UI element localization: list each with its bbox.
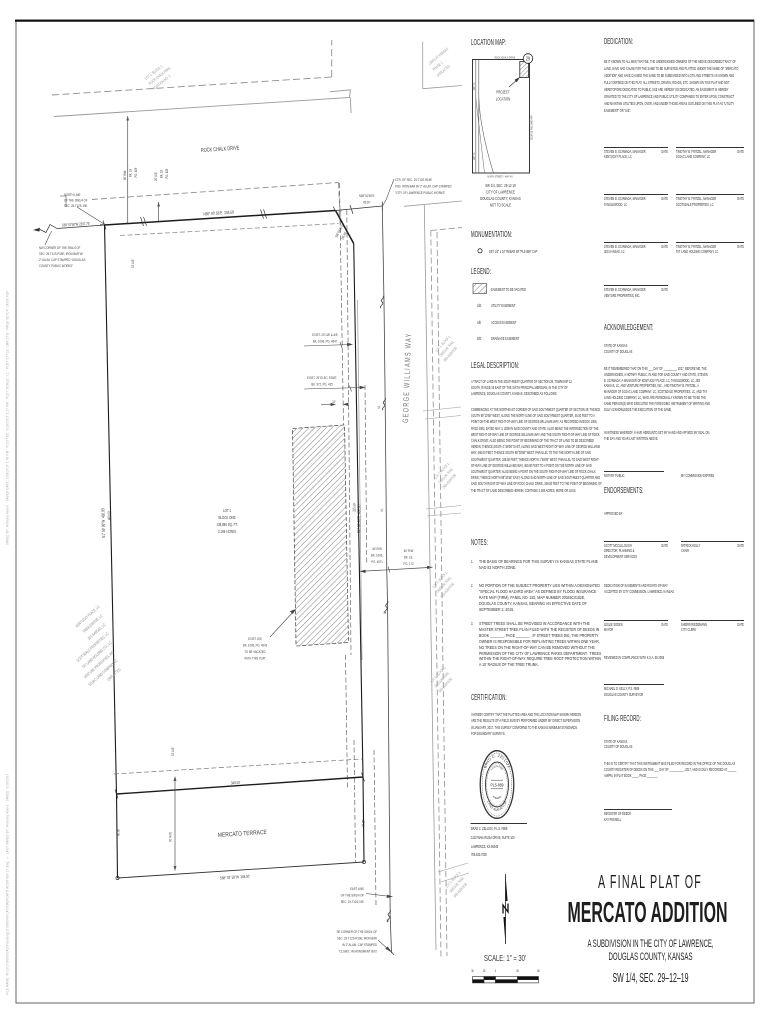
svg-text:EXIST. 20′ U/E & A/E: EXIST. 20′ U/E & A/E [312, 332, 338, 337]
svg-text:S/L: S/L [386, 918, 390, 922]
svg-text:OF THE SW1/4 OF: OF THE SW1/4 OF [341, 893, 365, 898]
svg-text:15′ U/E: 15′ U/E [171, 747, 175, 756]
svg-text:A SUBDIVISION IN THE CITY OF L: A SUBDIVISION IN THE CITY OF LAWRENCE, [588, 938, 714, 950]
svg-text:ROCK CHALK DRIVE: ROCK CHALK DRIVE [201, 146, 240, 154]
svg-text:BK. 972, PG. 435: BK. 972, PG. 435 [311, 382, 332, 387]
svg-text:GEORGE WILLIAMS WAY: GEORGE WILLIAMS WAY [530, 115, 534, 140]
svg-text:80′ R/W: 80′ R/W [123, 170, 127, 180]
svg-text:460.00′: 460.00′ [106, 511, 111, 520]
svg-text:PLS-889: PLS-889 [491, 782, 504, 787]
svg-text:NORTH LINE: NORTH LINE [64, 192, 81, 197]
svg-text:2″ ALUM. CAP STAMPED “DOUGLAS: 2″ ALUM. CAP STAMPED “DOUGLAS [39, 257, 86, 262]
svg-text:BK. 1006,: BK. 1006, [371, 553, 383, 558]
svg-text:“CLSM3”, IN MONUMENT BOX: “CLSM3”, IN MONUMENT BOX [339, 949, 378, 954]
svg-text:IN 2″ ALUM. CAP STAMPED: IN 2″ ALUM. CAP STAMPED [342, 942, 377, 947]
svg-text:PROJECT: PROJECT [496, 90, 510, 95]
svg-text:S1° 59′ 06″E 460.00′: S1° 59′ 06″E 460.00′ [356, 504, 362, 533]
svg-text:S/L: S/L [383, 610, 387, 614]
svg-text:3.169 ACRES: 3.169 ACRES [218, 529, 236, 534]
svg-text:EXIST. 25′ ELEC. ESMT.: EXIST. 25′ ELEC. ESMT. [307, 375, 337, 380]
svg-text:CTR. OF SEC. 29-T12S-R19E: CTR. OF SEC. 29-T12S-R19E [395, 177, 432, 182]
svg-text:S88° 02′ 58″W 348.50′: S88° 02′ 58″W 348.50′ [220, 874, 250, 881]
svg-text:BK. 1006, PG. 4943: BK. 1006, PG. 4943 [243, 643, 267, 648]
svg-text:MERCATO TERRACE: MERCATO TERRACE [218, 829, 267, 839]
svg-text:KANSAS: KANSAS [492, 795, 502, 800]
svg-text:TO BE VACATED: TO BE VACATED [244, 649, 265, 654]
svg-text:SEC. 25-T12S-R19E; IRON BAR W/: SEC. 25-T12S-R19E; IRON BAR W/ [39, 251, 84, 256]
svg-text:N1° 59′ 06″W 460.00′: N1° 59′ 06″W 460.00′ [100, 508, 106, 538]
svg-text:40′ R/W: 40′ R/W [372, 546, 382, 551]
svg-text:PG. 4571: PG. 4571 [371, 559, 383, 564]
svg-text:60: 60 [537, 969, 540, 973]
svg-text:OF THE SW1/4 OF: OF THE SW1/4 OF [64, 198, 88, 203]
svg-text:15: 15 [483, 969, 486, 973]
svg-text:BK. 18,: BK. 18, [404, 555, 413, 560]
svg-text:WITH THIS PLAT: WITH THIS PLAT [244, 656, 266, 661]
svg-text:N89°10′58″E: N89°10′58″E [359, 193, 375, 198]
svg-text:FILE NAME: W:\2017\3000\CAD\Pl: FILE NAME: W:\2017\3000\CAD\Planning\17\… [5, 773, 10, 995]
svg-text:PG. 629: PG. 629 [134, 168, 138, 178]
svg-text:LOT 1: LOT 1 [223, 508, 232, 513]
svg-text:348.50′: 348.50′ [231, 780, 241, 786]
svg-text:FND. IRON BAR W/ 2″ ALUM. CAP: FND. IRON BAR W/ 2″ ALUM. CAP STAMPED [395, 184, 452, 189]
svg-text:DOUGLAS COUNTY, KANSAS: DOUGLAS COUNTY, KANSAS [480, 196, 521, 201]
svg-text:COUNTY PUBLIC WORKS”: COUNTY PUBLIC WORKS” [39, 263, 73, 268]
svg-text:BK. 18: BK. 18 [129, 169, 133, 177]
svg-text:SEC. 29-T12S-19E: SEC. 29-T12S-19E [341, 899, 365, 904]
svg-text:SW 1/4, SEC. 29–12–19: SW 1/4, SEC. 29–12–19 [613, 970, 689, 985]
svg-text:“CITY OF LAWRENCE PUBLIC WORKS: “CITY OF LAWRENCE PUBLIC WORKS” [395, 190, 446, 195]
svg-text:30: 30 [516, 969, 519, 973]
svg-text:29: 29 [526, 57, 530, 63]
svg-text:BLOCK ONE: BLOCK ONE [218, 515, 235, 520]
svg-text:NOT TO SCALE: NOT TO SCALE [490, 203, 511, 208]
svg-text:BK. 1006, PG. 4847: BK. 1006, PG. 4847 [313, 339, 337, 344]
svg-text:HWY 10: HWY 10 [472, 152, 476, 160]
svg-text:EXIST. D/E: EXIST. D/E [248, 636, 262, 641]
svg-text:S/L: S/L [380, 508, 384, 512]
svg-text:A FINAL PLAT OF: A FINAL PLAT OF [598, 872, 702, 892]
svg-text:LAND SURVEYOR: LAND SURVEYOR [486, 800, 508, 812]
svg-text:S/L: S/L [377, 405, 381, 409]
svg-text:GEORGE WILLIAMS WAY: GEORGE WILLIAMS WAY [401, 332, 413, 423]
svg-text:138,086 SQ. FT.: 138,086 SQ. FT. [216, 522, 237, 527]
svg-text:NW CORNER OF THE SW1/4 OF: NW CORNER OF THE SW1/4 OF [39, 245, 81, 250]
svg-text:60′ R/W: 60′ R/W [168, 832, 173, 842]
svg-text:PG. 172: PG. 172 [404, 561, 414, 566]
svg-text:SEC. 29-T12S-R19E; IRON BAR: SEC. 29-T12S-R19E; IRON BAR [337, 936, 377, 941]
svg-text:W 6TH STREET - HWY 40: W 6TH STREET - HWY 40 [488, 175, 513, 179]
svg-text:LICENSED: LICENSED [490, 765, 504, 771]
svg-text:N88° 00′ 58″E 348.50′: N88° 00′ 58″E 348.50′ [203, 210, 234, 217]
svg-text:SW 1/4, SEC. 29-12-19: SW 1/4, SEC. 29-12-19 [485, 183, 516, 188]
svg-text:0: 0 [495, 969, 496, 973]
svg-text:CITY OF LAWRENCE: CITY OF LAWRENCE [486, 190, 515, 195]
svg-text:EAST LINE: EAST LINE [350, 886, 364, 891]
svg-text:30: 30 [471, 969, 474, 973]
svg-text:20′ U/E: 20′ U/E [154, 172, 158, 181]
svg-text:ROCK CHALK DRIVE: ROCK CHALK DRIVE [495, 56, 516, 60]
svg-text:SE CORNER OF THE SW1/4 OF: SE CORNER OF THE SW1/4 OF [337, 929, 378, 934]
svg-text:60.00′: 60.00′ [115, 828, 120, 836]
svg-text:SEC. 25-T12S-19E: SEC. 25-T12S-19E [64, 203, 88, 208]
svg-text:45.00′: 45.00′ [363, 200, 370, 205]
svg-text:SAVED BY: Anthony Moore SAVE: SAVED BY: Anthony Moore SAVED DATE: 3/28… [5, 290, 10, 545]
svg-text:60.00′: 60.00′ [361, 819, 366, 827]
svg-text:BK. 18: BK. 18 [160, 170, 164, 178]
svg-text:10′: 10′ [332, 399, 336, 404]
svg-text:MERCATO ADDITION: MERCATO ADDITION [568, 897, 728, 929]
svg-text:HWY 10: HWY 10 [472, 82, 476, 90]
svg-text:15′ U/E: 15′ U/E [131, 259, 135, 268]
svg-text:PG. 629: PG. 629 [165, 169, 169, 179]
svg-text:60′ R/W: 60′ R/W [404, 548, 414, 553]
svg-text:325.69′: 325.69′ [352, 503, 357, 512]
svg-text:LOCATION: LOCATION [496, 97, 510, 102]
svg-text:SCALE: 1″ = 30′: SCALE: 1″ = 30′ [484, 953, 526, 963]
svg-text:DOUGLAS COUNTY, KANSAS: DOUGLAS COUNTY, KANSAS [609, 951, 693, 963]
